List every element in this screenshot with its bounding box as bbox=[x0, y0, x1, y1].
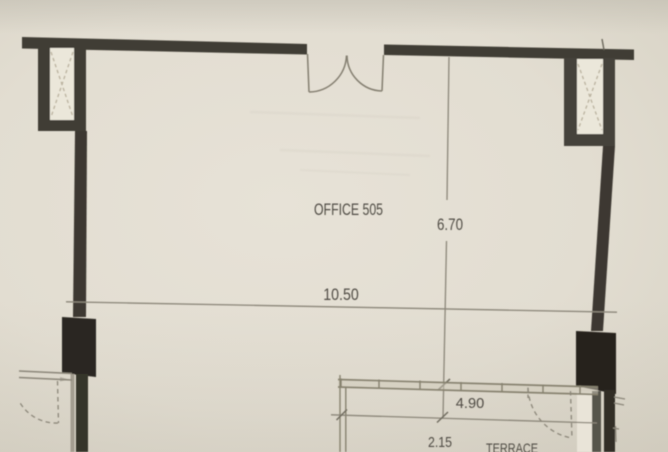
svg-text:10.50: 10.50 bbox=[323, 285, 359, 304]
svg-text:6.70: 6.70 bbox=[437, 215, 463, 234]
svg-text:2.15: 2.15 bbox=[428, 434, 452, 451]
svg-text:OFFICE 505: OFFICE 505 bbox=[314, 200, 383, 219]
svg-text:TERRACE: TERRACE bbox=[486, 440, 538, 452]
svg-text:4.90: 4.90 bbox=[456, 395, 485, 412]
